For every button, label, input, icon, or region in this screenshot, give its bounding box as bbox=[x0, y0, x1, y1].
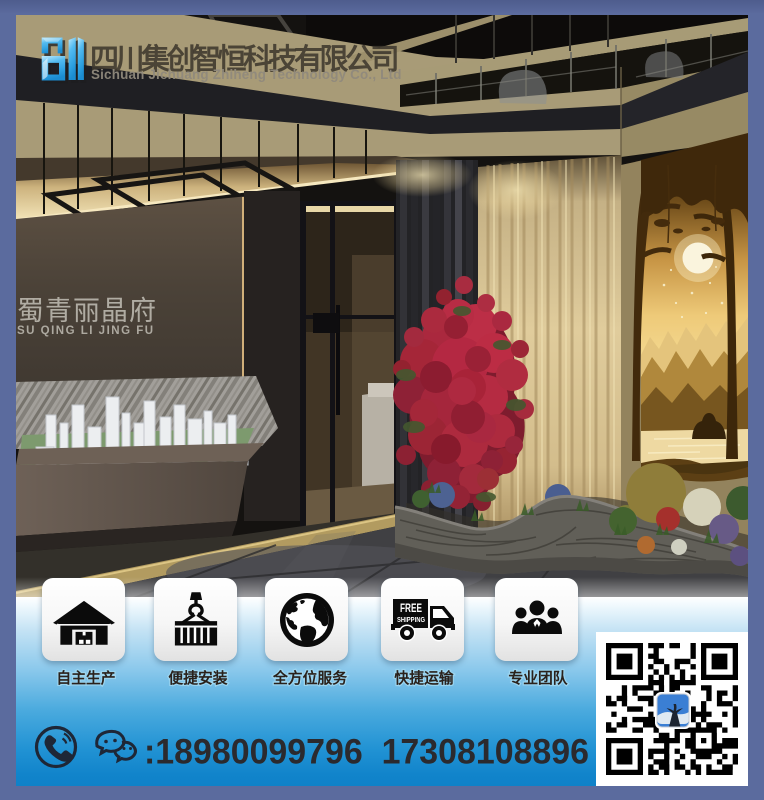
svg-text:SHIPPING: SHIPPING bbox=[397, 615, 425, 624]
svg-text:自主生产: 自主生产 bbox=[56, 669, 115, 687]
svg-text:全方位服务: 全方位服务 bbox=[272, 669, 347, 687]
svg-text:专业团队: 专业团队 bbox=[508, 669, 567, 687]
svg-text:快捷运输: 快捷运输 bbox=[394, 669, 453, 687]
svg-text:蜀青丽晶府: 蜀青丽晶府 bbox=[17, 296, 157, 326]
svg-text:SU QING LI JING FU: SU QING LI JING FU bbox=[17, 325, 155, 337]
svg-text:FREE: FREE bbox=[400, 601, 422, 615]
svg-text::18980099796 17308108896: :18980099796 17308108896 bbox=[144, 733, 589, 772]
svg-text:便捷安装: 便捷安装 bbox=[168, 669, 227, 687]
